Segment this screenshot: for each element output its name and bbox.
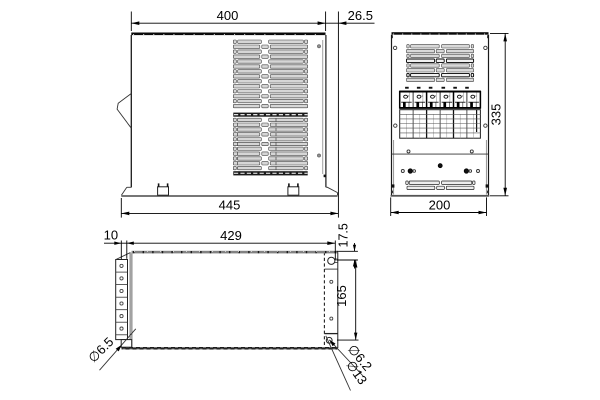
- svg-text:165: 165: [334, 285, 349, 307]
- svg-text:429: 429: [220, 228, 242, 243]
- svg-text:200: 200: [429, 197, 451, 212]
- svg-text:335: 335: [489, 104, 504, 126]
- svg-text:26.5: 26.5: [348, 8, 373, 23]
- svg-text:∅6.5: ∅6.5: [85, 334, 116, 365]
- svg-text:17.5: 17.5: [337, 223, 351, 247]
- svg-text:10: 10: [104, 228, 118, 243]
- svg-text:400: 400: [217, 8, 239, 23]
- svg-text:445: 445: [219, 198, 241, 213]
